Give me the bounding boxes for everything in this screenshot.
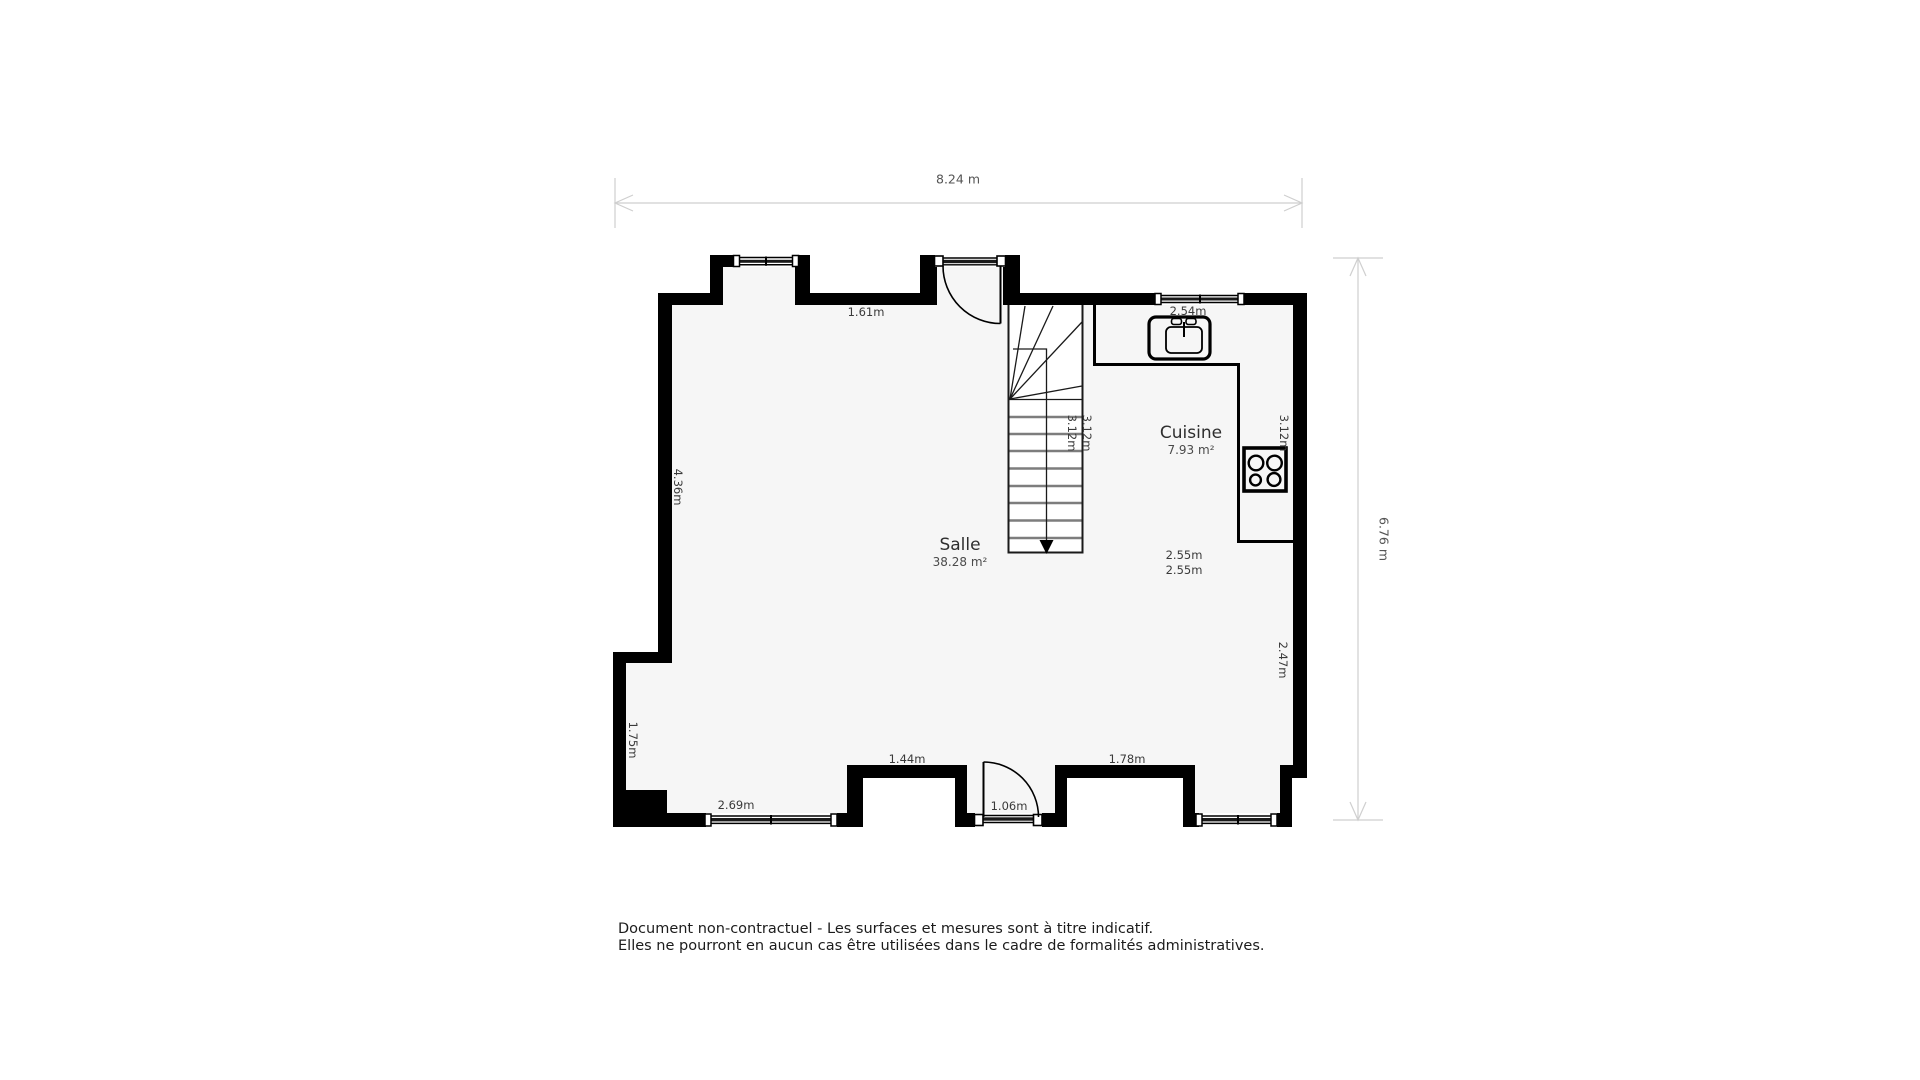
measure-bottom-door: 1.06m: [991, 799, 1028, 813]
disclaimer-line-2: Elles ne pourront en aucun cas être util…: [618, 938, 1265, 955]
window-bottom-left: [705, 813, 837, 827]
measure-kitchen-width-b: 2.55m: [1166, 563, 1203, 577]
measure-kitchen-right-wall: 3.12m: [1277, 415, 1291, 452]
measure-stair-run-a: 3.12m: [1065, 415, 1079, 452]
vertical-dimension-line: [1333, 258, 1383, 820]
stove-icon: [1244, 448, 1286, 491]
measure-left-wall-lower: 1.75m: [626, 722, 640, 759]
room-area-salle: 38.28 m²: [933, 555, 988, 569]
measure-kitchen-width-a: 2.55m: [1166, 548, 1203, 562]
measure-left-wall: 4.36m: [671, 469, 685, 506]
measure-bottom-wall-right: 1.78m: [1109, 752, 1146, 766]
measure-right-wall-lower: 2.47m: [1276, 642, 1290, 679]
measure-bottom-wall-left: 1.44m: [889, 752, 926, 766]
sink-icon: [1149, 317, 1210, 359]
room-name-cuisine: Cuisine: [1160, 423, 1222, 443]
measure-top-wall: 1.61m: [848, 305, 885, 319]
disclaimer-line-1: Document non-contractuel - Les surfaces …: [618, 921, 1153, 938]
floorplan-page: 8.24 m 6.76 m 1.61m 2.54m 2.55m 2.55m 3.…: [0, 0, 1920, 1080]
measure-bottom-window-wall: 2.69m: [718, 798, 755, 812]
measure-kitchen-top-wall: 2.54m: [1170, 304, 1207, 318]
overall-width-label: 8.24 m: [936, 172, 980, 187]
overall-height-label: 6.76 m: [1377, 517, 1392, 561]
measure-stair-run-b: 3.12m: [1080, 415, 1094, 452]
window-top-left: [734, 255, 799, 267]
room-name-salle: Salle: [939, 535, 980, 555]
room-area-cuisine: 7.93 m²: [1167, 443, 1214, 457]
window-bottom-right: [1196, 813, 1277, 827]
